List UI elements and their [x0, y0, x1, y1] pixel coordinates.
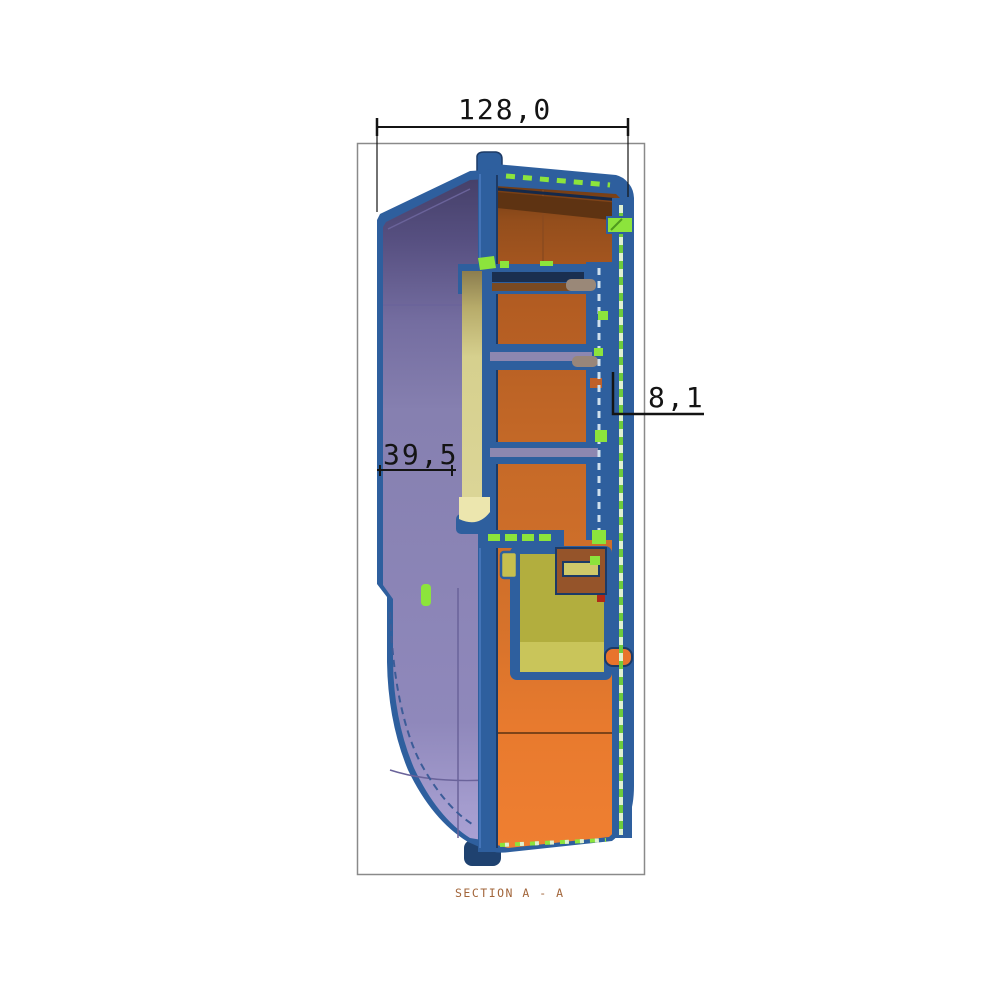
- dim-text-overall-width: 128,0: [458, 93, 552, 126]
- clip-shelf-left: [478, 256, 496, 270]
- boss-top: [566, 279, 596, 291]
- hatch-dash-2: [505, 534, 517, 541]
- clip-shelf-dash: [540, 261, 553, 266]
- dim-text-shell-depth: 39,5: [383, 438, 458, 471]
- yellow-strip: [462, 271, 482, 503]
- clip-wall-1: [598, 311, 608, 320]
- battery-box-lower-band: [520, 642, 604, 672]
- small-yellow-tab: [501, 552, 517, 578]
- section-view-drawing: 128,0 8,1 39,5 SECTION A - A: [0, 0, 1000, 1000]
- red-marker: [597, 595, 605, 602]
- clip-lower-left: [421, 584, 431, 606]
- clip-wall-3: [595, 430, 607, 442]
- clip-wall-2: [594, 348, 603, 356]
- boss-middle: [572, 356, 598, 367]
- dim-text-wall-thickness: 8,1: [648, 381, 705, 414]
- hatch-dash-3: [522, 534, 534, 541]
- hatch-dash-4: [539, 534, 551, 541]
- section-view-label: SECTION A - A: [455, 886, 565, 900]
- orange-side-tab: [605, 648, 632, 666]
- hatch-dash-1: [488, 534, 500, 541]
- clip-wall-4: [592, 530, 606, 544]
- shelf-lower-stripe: [490, 448, 598, 457]
- clip-wall-5: [590, 556, 600, 565]
- clip-top-right: [607, 217, 633, 233]
- clip-shelf-small: [500, 261, 509, 268]
- cad-section-view-screenshot: 128,0 8,1 39,5 SECTION A - A: [0, 0, 1000, 1000]
